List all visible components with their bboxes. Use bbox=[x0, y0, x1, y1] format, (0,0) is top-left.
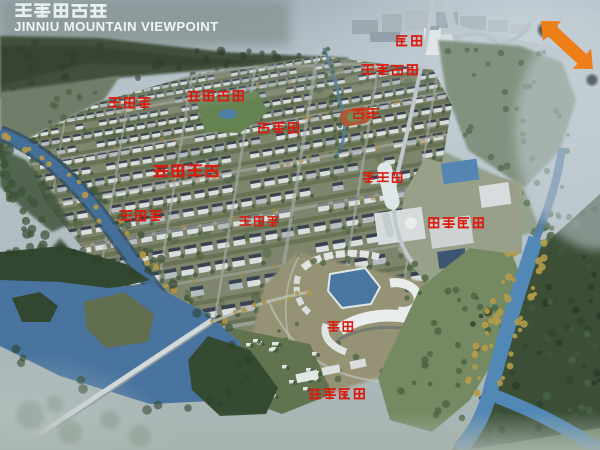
svg-text:JINNIU MOUNTAIN VIEWPOINT: JINNIU MOUNTAIN VIEWPOINT bbox=[14, 19, 219, 34]
